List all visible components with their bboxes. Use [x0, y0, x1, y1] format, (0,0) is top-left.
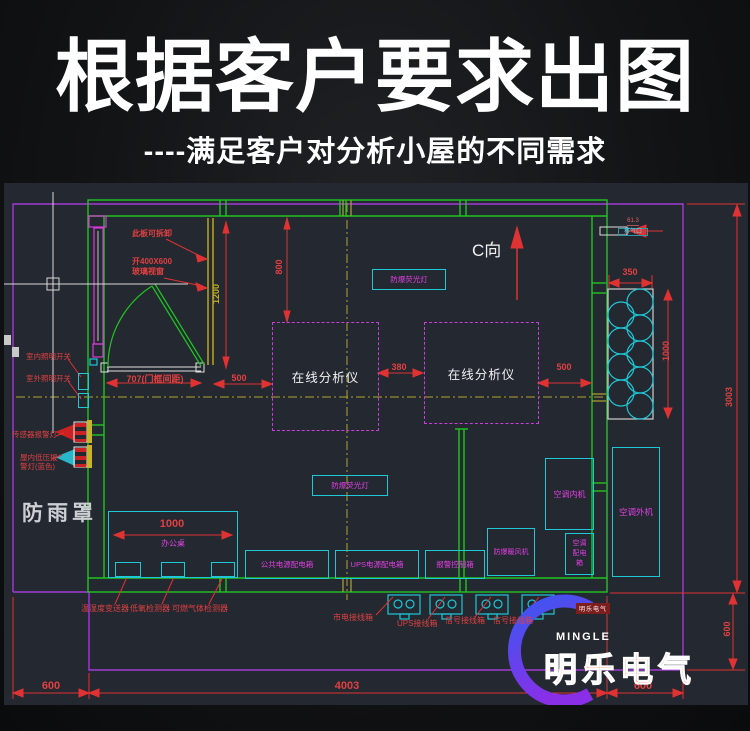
gas-detector-label: 可燃气体检测器: [172, 604, 228, 614]
ac-outdoor-label: 空调外机: [619, 506, 653, 518]
public-power-box: 公共电源配电箱: [245, 550, 329, 579]
low-pressure-line2: 警灯(蓝色): [20, 462, 55, 471]
ac-outdoor-unit: 空调外机: [612, 447, 660, 577]
outdoor-light-switch-box: [78, 393, 89, 408]
temp-humidity-label: 温湿度变送器: [81, 604, 129, 614]
indoor-light-switch-box: [78, 373, 89, 390]
dim-350: 350: [605, 267, 655, 278]
analyzer-label: 在线分析仪: [292, 367, 360, 386]
watermark-brand-cn: 明乐电气: [544, 643, 696, 691]
vent-line1: 61.3: [627, 218, 639, 226]
outdoor-switch-label: 室外照明开关: [26, 374, 71, 383]
fluorescent-light-2: 防爆荧光灯: [312, 475, 388, 496]
vent-line2: 排气口: [618, 228, 648, 237]
low-oxygen-sensor: [161, 562, 185, 577]
analyzer-label: 在线分析仪: [448, 364, 516, 383]
low-pressure-line1: 屋内低压报: [20, 453, 58, 462]
door-leaf-swing: [108, 284, 204, 367]
fluorescent-label: 防爆荧光灯: [331, 480, 369, 491]
page-subtitle: ----满足客户对分析小屋的不同需求: [0, 128, 750, 170]
red-alarm-beacon: [55, 420, 92, 443]
dim-1000-rack: 1000: [661, 329, 673, 373]
removable-panel-label: 此板可拆卸: [132, 229, 172, 239]
dim-600-bottom-left: 600: [26, 680, 76, 693]
low-pressure-label: 屋内低压报 警灯(蓝色): [20, 453, 58, 471]
cylinder-rack: [608, 289, 653, 419]
glass-window-label: 开400X600 玻璃视窗: [132, 257, 172, 276]
indoor-switch-label: 室内照明开关: [26, 352, 71, 361]
cad-canvas: 在线分析仪 在线分析仪 防爆荧光灯 防爆荧光灯 办公桌 公共电源配电箱 UPS电…: [4, 183, 748, 705]
alarm-control-label: 报警控制箱: [436, 559, 474, 570]
mains-jb-label: 市电接线箱: [333, 613, 373, 623]
dim-707: 707(门框间距): [110, 374, 200, 385]
dim-500-right: 500: [534, 362, 594, 373]
ac-dist-line: 配电: [573, 549, 587, 559]
dim-4003: 4003: [322, 680, 372, 693]
heater-box: 防爆暖风机: [487, 528, 535, 576]
watermark-seal: 明乐电气: [576, 603, 610, 614]
fluorescent-label: 防爆荧光灯: [390, 274, 428, 285]
analyzer-box-1: 在线分析仪: [272, 322, 379, 431]
dim-1200: 1200: [211, 272, 223, 316]
cad-linework: [4, 183, 748, 705]
ac-indoor-unit: 空调内机: [545, 458, 594, 530]
ucs-marks: [4, 335, 19, 357]
dim-1000-desk: 1000: [142, 518, 202, 531]
desk-label: 办公桌: [161, 538, 185, 549]
dim-600-right: 600: [722, 607, 734, 651]
ac-dist-line: 箱: [576, 559, 583, 569]
promo-page: { "header": { "title": "根据客户要求出图", "subt…: [0, 0, 750, 731]
glass-window-line2: 玻璃视窗: [132, 267, 164, 276]
ac-indoor-label: 空调内机: [554, 489, 586, 500]
ups-power-label: UPS电源配电箱: [351, 559, 404, 570]
analyzer-box-2: 在线分析仪: [424, 322, 539, 424]
c-direction-label: C向: [472, 241, 501, 261]
vent-label: 61.3 排气口: [618, 209, 648, 236]
ups-power-box: UPS电源配电箱: [335, 550, 419, 579]
rain-cover-label: 防雨罩: [22, 501, 97, 526]
signal-jb-label-2: 信号接线箱: [493, 616, 533, 626]
ups-jb-label: UPS接线箱: [397, 619, 437, 629]
low-oxygen-label: 低氧检测器: [130, 604, 170, 614]
page-title: 根据客户要求出图: [0, 12, 750, 127]
dim-380: 380: [374, 362, 424, 373]
temp-humidity-sensor: [115, 562, 141, 577]
glass-window-line1: 开400X600: [132, 257, 172, 266]
mains-junction-box: [388, 595, 420, 619]
blue-alarm-beacon: [55, 445, 92, 468]
door-threshold: [101, 363, 204, 372]
door-leaf-open-magenta: [89, 216, 106, 365]
dim-3003: 3003: [724, 375, 736, 419]
dim-500-left: 500: [209, 373, 269, 384]
gas-cylinders: [608, 289, 653, 419]
ac-distribution-box: 空调 配电 箱: [565, 533, 594, 575]
fluorescent-light-1: 防爆荧光灯: [372, 269, 446, 290]
ac-dist-line: 空调: [573, 539, 587, 549]
dim-800: 800: [274, 245, 286, 289]
watermark-brand-en: MINGLE: [556, 631, 611, 643]
alarm-control-box: 报警控制箱: [425, 550, 485, 579]
heater-label: 防爆暖风机: [494, 547, 529, 557]
public-power-label: 公共电源配电箱: [261, 559, 314, 570]
gas-sensor: [211, 562, 235, 577]
sensor-alarm-label: 传感器报警灯: [12, 430, 57, 439]
signal-jb-label-1: 信号接线箱: [445, 616, 485, 626]
